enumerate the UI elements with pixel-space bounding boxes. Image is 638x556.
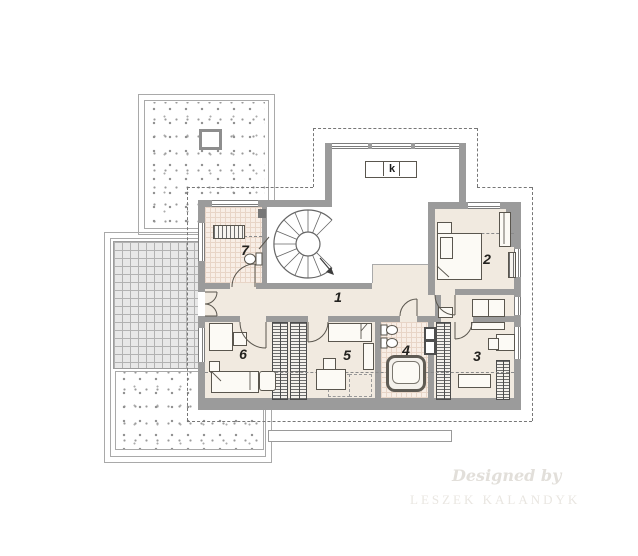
- room-label-7: 7: [241, 242, 249, 258]
- toilet-room4-a: [381, 325, 398, 335]
- door-balcony-left: [205, 292, 217, 316]
- room-label-4: 4: [402, 342, 410, 358]
- floor-plan-canvas: k 1 2 3 4 5 6 7 Designed by LESZEK KALAN…: [0, 0, 638, 556]
- room-label-5: 5: [343, 347, 351, 363]
- spiral-staircase: [274, 210, 334, 278]
- shower-door-room7: [259, 237, 269, 249]
- room-label-6: 6: [239, 346, 247, 362]
- eaves-outline-right: [532, 187, 533, 421]
- eaves-outline-top-left: [187, 187, 313, 188]
- eaves-outline-step-left: [313, 128, 314, 187]
- door-room7: [232, 264, 255, 287]
- eaves-outline-step-right: [477, 128, 478, 187]
- eaves-outline-bottom: [187, 421, 532, 422]
- watermark-designer-name: LESZEK KALANDYK: [410, 492, 580, 508]
- eaves-outline-top: [313, 128, 477, 129]
- skylight-marker-div1: [383, 161, 384, 176]
- bed-fold-lines: [212, 213, 504, 390]
- room-label-3: 3: [473, 348, 481, 364]
- eaves-outline-left: [187, 187, 188, 421]
- skylight-marker-div2: [399, 161, 400, 176]
- door-room6: [240, 322, 266, 348]
- watermark-designed-by: Designed by: [452, 466, 561, 485]
- door-room5: [308, 322, 328, 342]
- room-label-2: 2: [483, 251, 491, 267]
- eaves-outline-top-right: [477, 187, 532, 188]
- door-room3: [455, 322, 472, 339]
- room-label-1: 1: [334, 289, 342, 305]
- door-swings: [205, 264, 472, 348]
- toilet-room4-b: [381, 338, 398, 348]
- door-room2: [435, 295, 455, 315]
- door-room4: [400, 299, 417, 316]
- skylight-label: k: [389, 163, 395, 175]
